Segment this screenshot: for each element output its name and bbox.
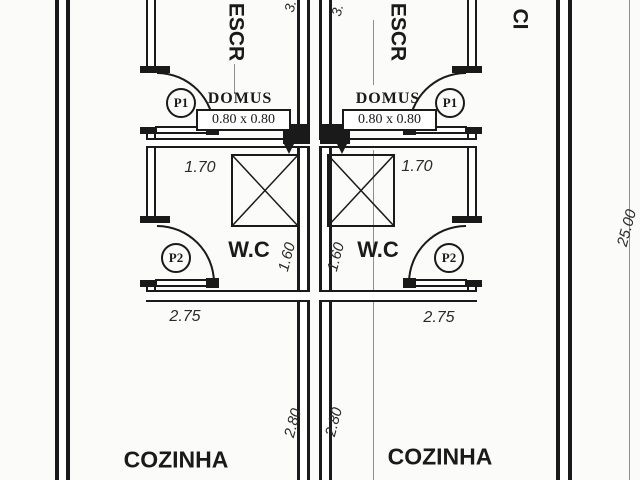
- left-domus-size-box: 0.80 x 0.80: [196, 109, 291, 131]
- right-domus-size: 0.80 x 0.80: [358, 112, 421, 128]
- right-domus-label: DOMUS: [356, 91, 421, 107]
- left-unit-west-wall-upper: [146, 0, 156, 68]
- left-down-arrow-icon: [283, 142, 295, 154]
- floor-plan: 25.00 CI P1 DOMUS 0.80 x 0.80 1.70 W.C 1…: [0, 0, 640, 480]
- left-wc-south-wall: [146, 290, 310, 302]
- left-domus-label: DOMUS: [208, 91, 273, 107]
- left-wc-depth-dim: 1.60: [276, 241, 298, 273]
- left-wc-outer-width-dim: 2.75: [169, 309, 200, 325]
- right-office-label: ESCR: [388, 3, 409, 61]
- right-wc-label: W.C: [357, 239, 399, 261]
- right-kitchen-label: COZINHA: [388, 446, 493, 469]
- right-wc-outer-width-dim: 2.75: [423, 310, 454, 326]
- left-unit-east-wall: [297, 0, 310, 480]
- right-wc-south-wall: [319, 290, 477, 302]
- boundary-wall-right: [556, 0, 572, 480]
- right-office-leader-line: [373, 20, 374, 85]
- left-domus-size: 0.80 x 0.80: [212, 112, 275, 128]
- right-domus-size-box: 0.80 x 0.80: [342, 109, 437, 131]
- boundary-wall-left: [55, 0, 70, 480]
- circulation-label: CI: [510, 9, 531, 30]
- left-kitchen-label: COZINHA: [124, 449, 229, 472]
- left-p1-door-tag: P1: [166, 88, 196, 118]
- left-office-label: ESCR: [226, 3, 247, 61]
- right-p2-door-tag: P2: [434, 243, 464, 273]
- right-down-arrow-icon: [336, 142, 348, 154]
- left-wc-label: W.C: [228, 239, 270, 261]
- right-unit-east-wall-upper: [467, 0, 477, 68]
- right-wc-width-dim: 1.70: [401, 159, 432, 175]
- left-office-height-dim: 3.: [282, 0, 299, 13]
- left-p2-jamb-top: [140, 216, 170, 223]
- dimension-25-00: 25.00: [615, 208, 639, 248]
- right-skylight-xbox: [327, 154, 395, 227]
- left-skylight-xbox: [231, 154, 299, 227]
- right-p2-jamb-top: [452, 216, 482, 223]
- right-p1-door-tag: P1: [435, 88, 465, 118]
- left-p2-door-tag: P2: [161, 243, 191, 273]
- left-wc-width-dim: 1.70: [184, 160, 215, 176]
